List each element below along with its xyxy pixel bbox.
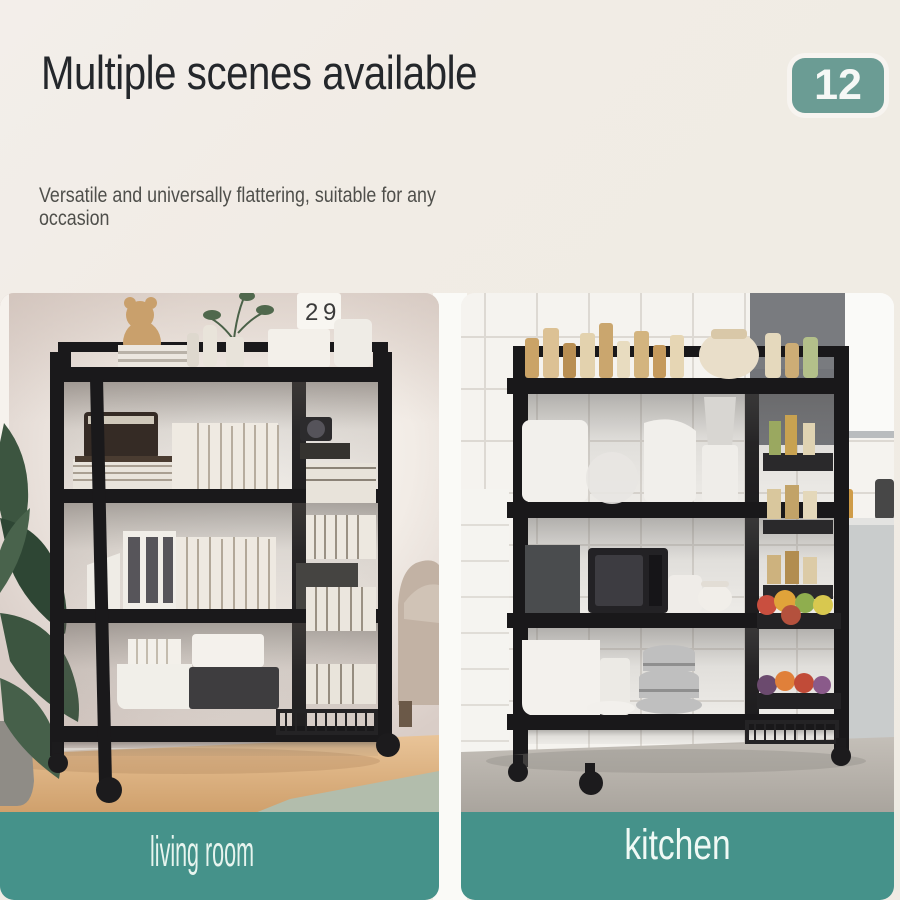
- svg-text:2: 2: [305, 299, 318, 326]
- svg-text:9: 9: [323, 299, 336, 326]
